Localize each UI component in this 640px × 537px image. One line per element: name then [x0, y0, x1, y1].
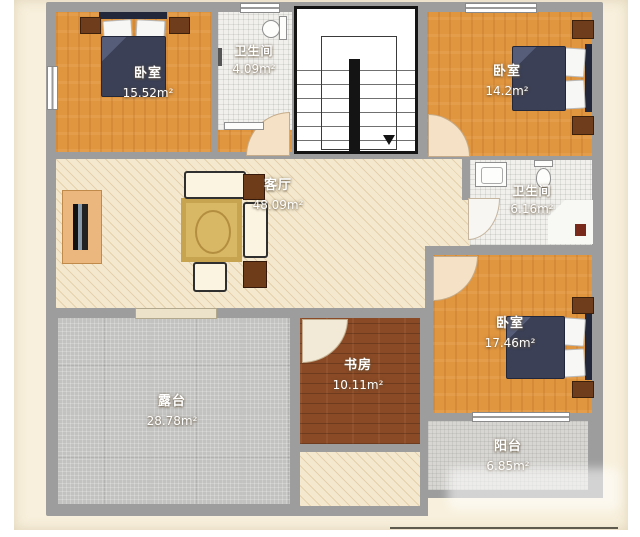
label-bedroom-top-right: 卧室 14.2m²	[457, 62, 557, 100]
floor-plan-image: 卧室 15.52m² 卫生间 4.09m² 卧室 14.2m² 客厅 48.09…	[0, 0, 640, 537]
room-area: 6.16m²	[482, 200, 582, 218]
watermark-blur	[448, 468, 620, 510]
window	[465, 3, 537, 13]
pillow-icon	[562, 348, 585, 377]
bath-mat	[224, 122, 264, 130]
headboard	[99, 12, 167, 19]
side-table-icon	[243, 261, 267, 288]
room-name: 书房	[308, 356, 408, 376]
watermark-underline	[390, 527, 618, 529]
armchair-icon	[193, 262, 227, 292]
nightstand-icon	[572, 297, 594, 314]
room-area: 10.11m²	[308, 376, 408, 394]
label-living-room: 客厅 48.09m²	[228, 176, 328, 214]
room-name: 卧室	[460, 314, 560, 334]
window	[47, 66, 58, 110]
room-name: 客厅	[228, 176, 328, 196]
wall-segment	[425, 246, 433, 308]
pillow-icon	[563, 79, 585, 109]
nightstand-icon	[169, 17, 190, 34]
stair-center-wall	[349, 59, 360, 151]
terrace-sliding-door	[135, 308, 217, 319]
nightstand-icon	[572, 20, 594, 39]
toilet-tank	[534, 160, 553, 167]
window	[472, 412, 570, 422]
pillow-icon	[562, 317, 586, 346]
hall-bottom-floor	[300, 452, 420, 506]
room-area: 15.52m²	[98, 84, 198, 102]
room-area: 48.09m²	[228, 196, 328, 214]
room-name: 卧室	[98, 64, 198, 84]
tv-icon	[73, 204, 88, 250]
nightstand-icon	[572, 381, 594, 398]
toilet-icon	[262, 20, 280, 38]
label-terrace: 露台 28.78m²	[122, 392, 222, 430]
label-bathroom-top: 卫生间 4.09m²	[204, 42, 304, 78]
room-area: 17.46m²	[460, 334, 560, 352]
nightstand-icon	[80, 17, 101, 34]
headboard	[585, 314, 592, 380]
room-name: 阳台	[458, 437, 558, 457]
label-bedroom-top-left: 卧室 15.52m²	[98, 64, 198, 102]
room-name: 卧室	[457, 62, 557, 82]
room-area: 28.78m²	[122, 412, 222, 430]
wall-segment	[462, 156, 470, 200]
wall-segment	[433, 246, 470, 255]
room-area: 4.09m²	[204, 60, 304, 78]
toilet-tank	[279, 16, 287, 40]
stair-down-arrow-icon	[383, 135, 395, 145]
label-bedroom-bottom-right: 卧室 17.46m²	[460, 314, 560, 352]
room-name: 卫生间	[204, 42, 304, 60]
label-study: 书房 10.11m²	[308, 356, 408, 394]
headboard	[585, 44, 592, 112]
room-area: 14.2m²	[457, 82, 557, 100]
staircase-icon	[294, 6, 418, 154]
label-bathroom-right: 卫生间 6.16m²	[482, 182, 582, 218]
room-name: 卫生间	[482, 182, 582, 200]
room-name: 露台	[122, 392, 222, 412]
window	[240, 3, 280, 13]
pillow-icon	[563, 47, 586, 77]
shower-drain	[575, 224, 586, 236]
tv-stand-icon	[62, 190, 102, 264]
nightstand-icon	[572, 116, 594, 135]
